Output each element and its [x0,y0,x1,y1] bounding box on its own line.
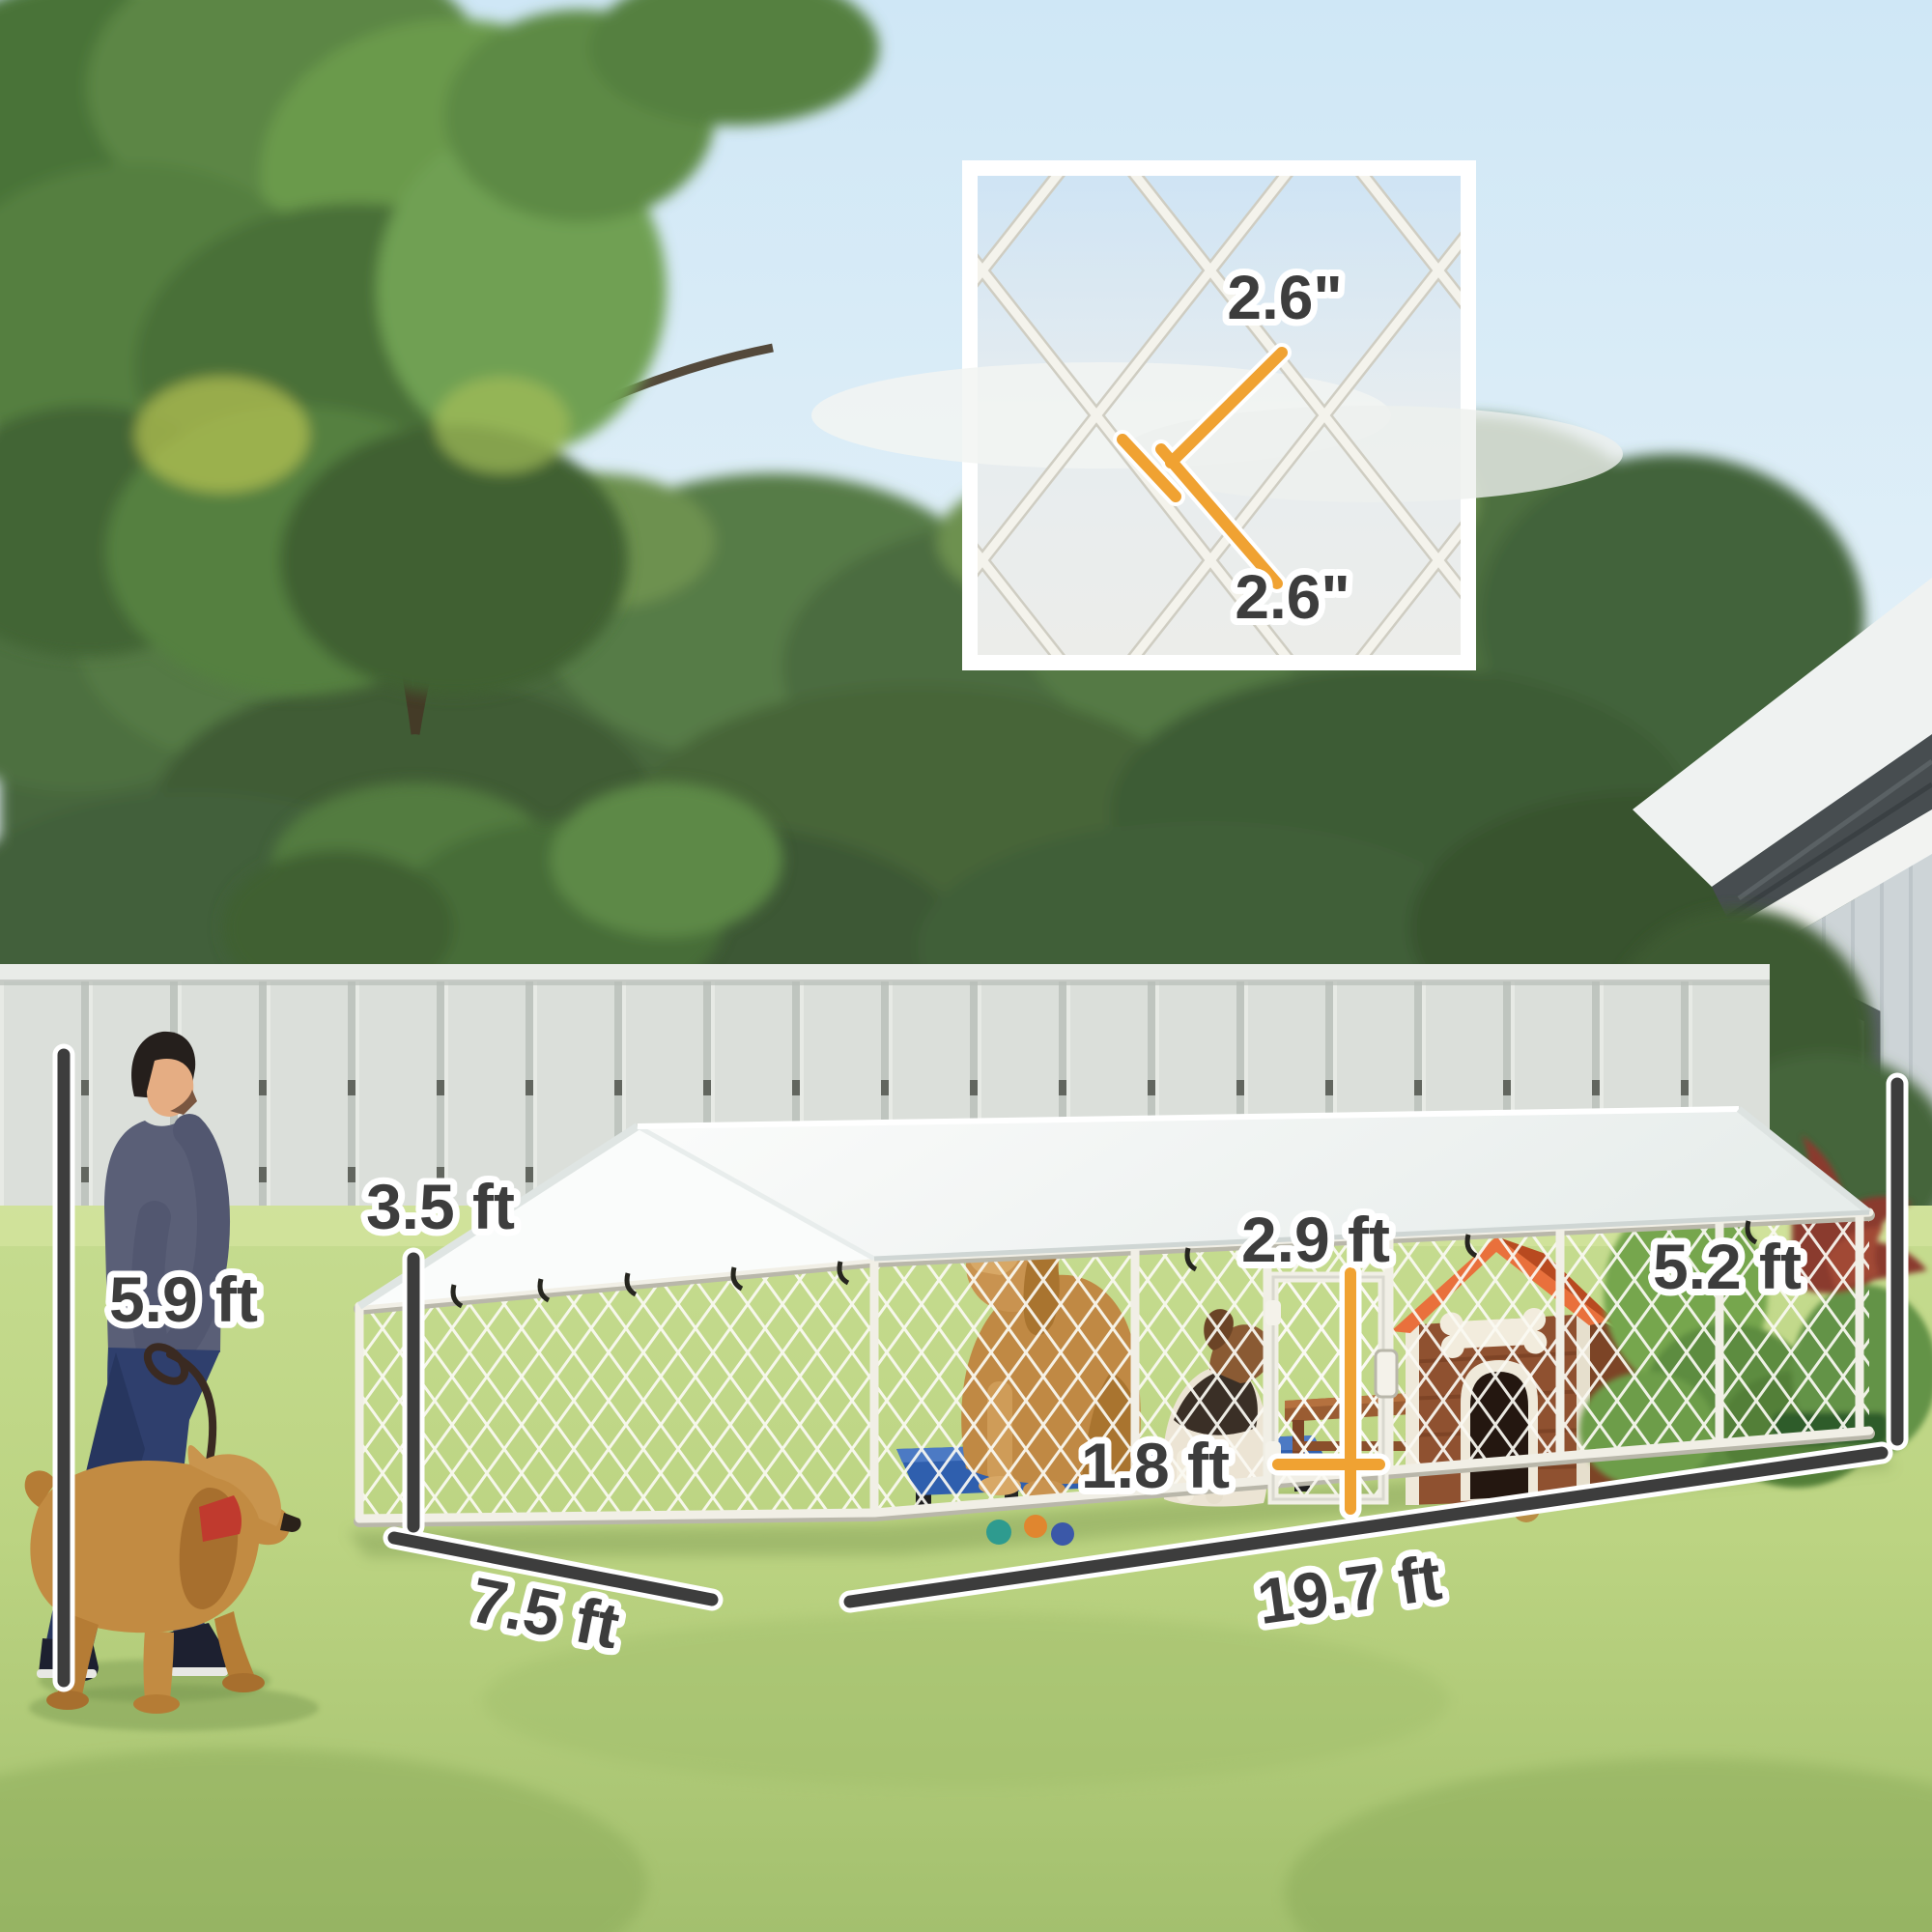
label-5-2ft: 5.2 ft [1653,1231,1802,1302]
label-1-8ft: 1.8 ft [1081,1430,1230,1501]
label-3-5ft: 3.5 ft [366,1171,515,1242]
mesh-size-label-top: 2.6" [1227,263,1342,332]
mesh-size-label-bottom: 2.6" [1235,562,1350,632]
gate-latch [1376,1350,1397,1397]
label-5-9ft: 5.9 ft [109,1264,258,1335]
label-2-9ft: 2.9 ft [1241,1204,1390,1275]
kennel-product-image: 2.6" 2.6" 5.9 ft 3.5 ft 7.5 ft 19.7 ft [0,0,1932,1932]
